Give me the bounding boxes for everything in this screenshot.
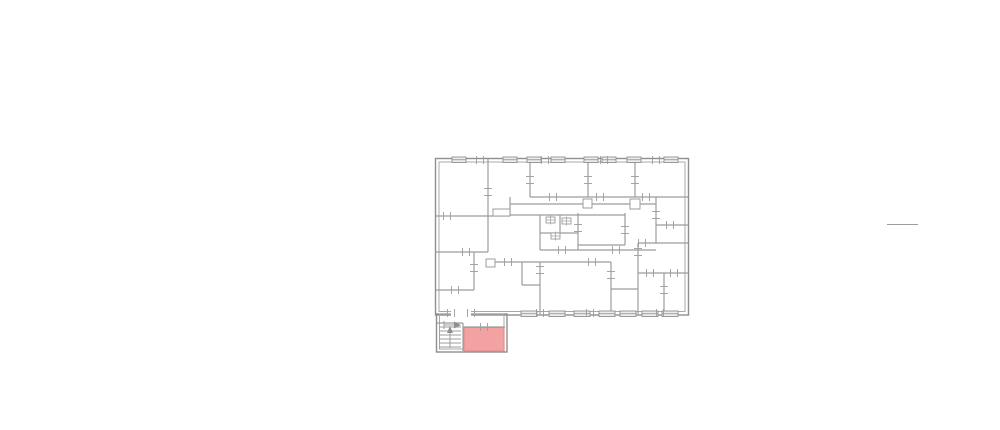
window-top [551,157,565,163]
floor-plan-canvas [0,0,1000,430]
sanitary-fixture [551,232,560,241]
windows [452,157,678,317]
door-openings [451,309,471,316]
sanitary-fixture [562,217,571,226]
interior-walls [436,159,688,351]
window-top [584,157,598,163]
floor-plan-svg [0,0,1000,430]
bathroom-fixtures [546,216,571,241]
window-bottom [662,311,678,317]
staircase [439,321,461,348]
window-top [627,157,641,163]
window-bottom [620,311,636,317]
highlight-room[interactable] [464,328,504,352]
window-top [503,157,517,163]
window-bottom [599,311,615,317]
window-top [602,157,616,163]
sanitary-fixture [546,216,555,225]
window-bottom [521,311,537,317]
window-bottom [642,311,658,317]
window-top [452,157,466,163]
window-top [664,157,678,163]
window-bottom [574,311,590,317]
window-bottom [549,311,565,317]
window-top [527,157,541,163]
